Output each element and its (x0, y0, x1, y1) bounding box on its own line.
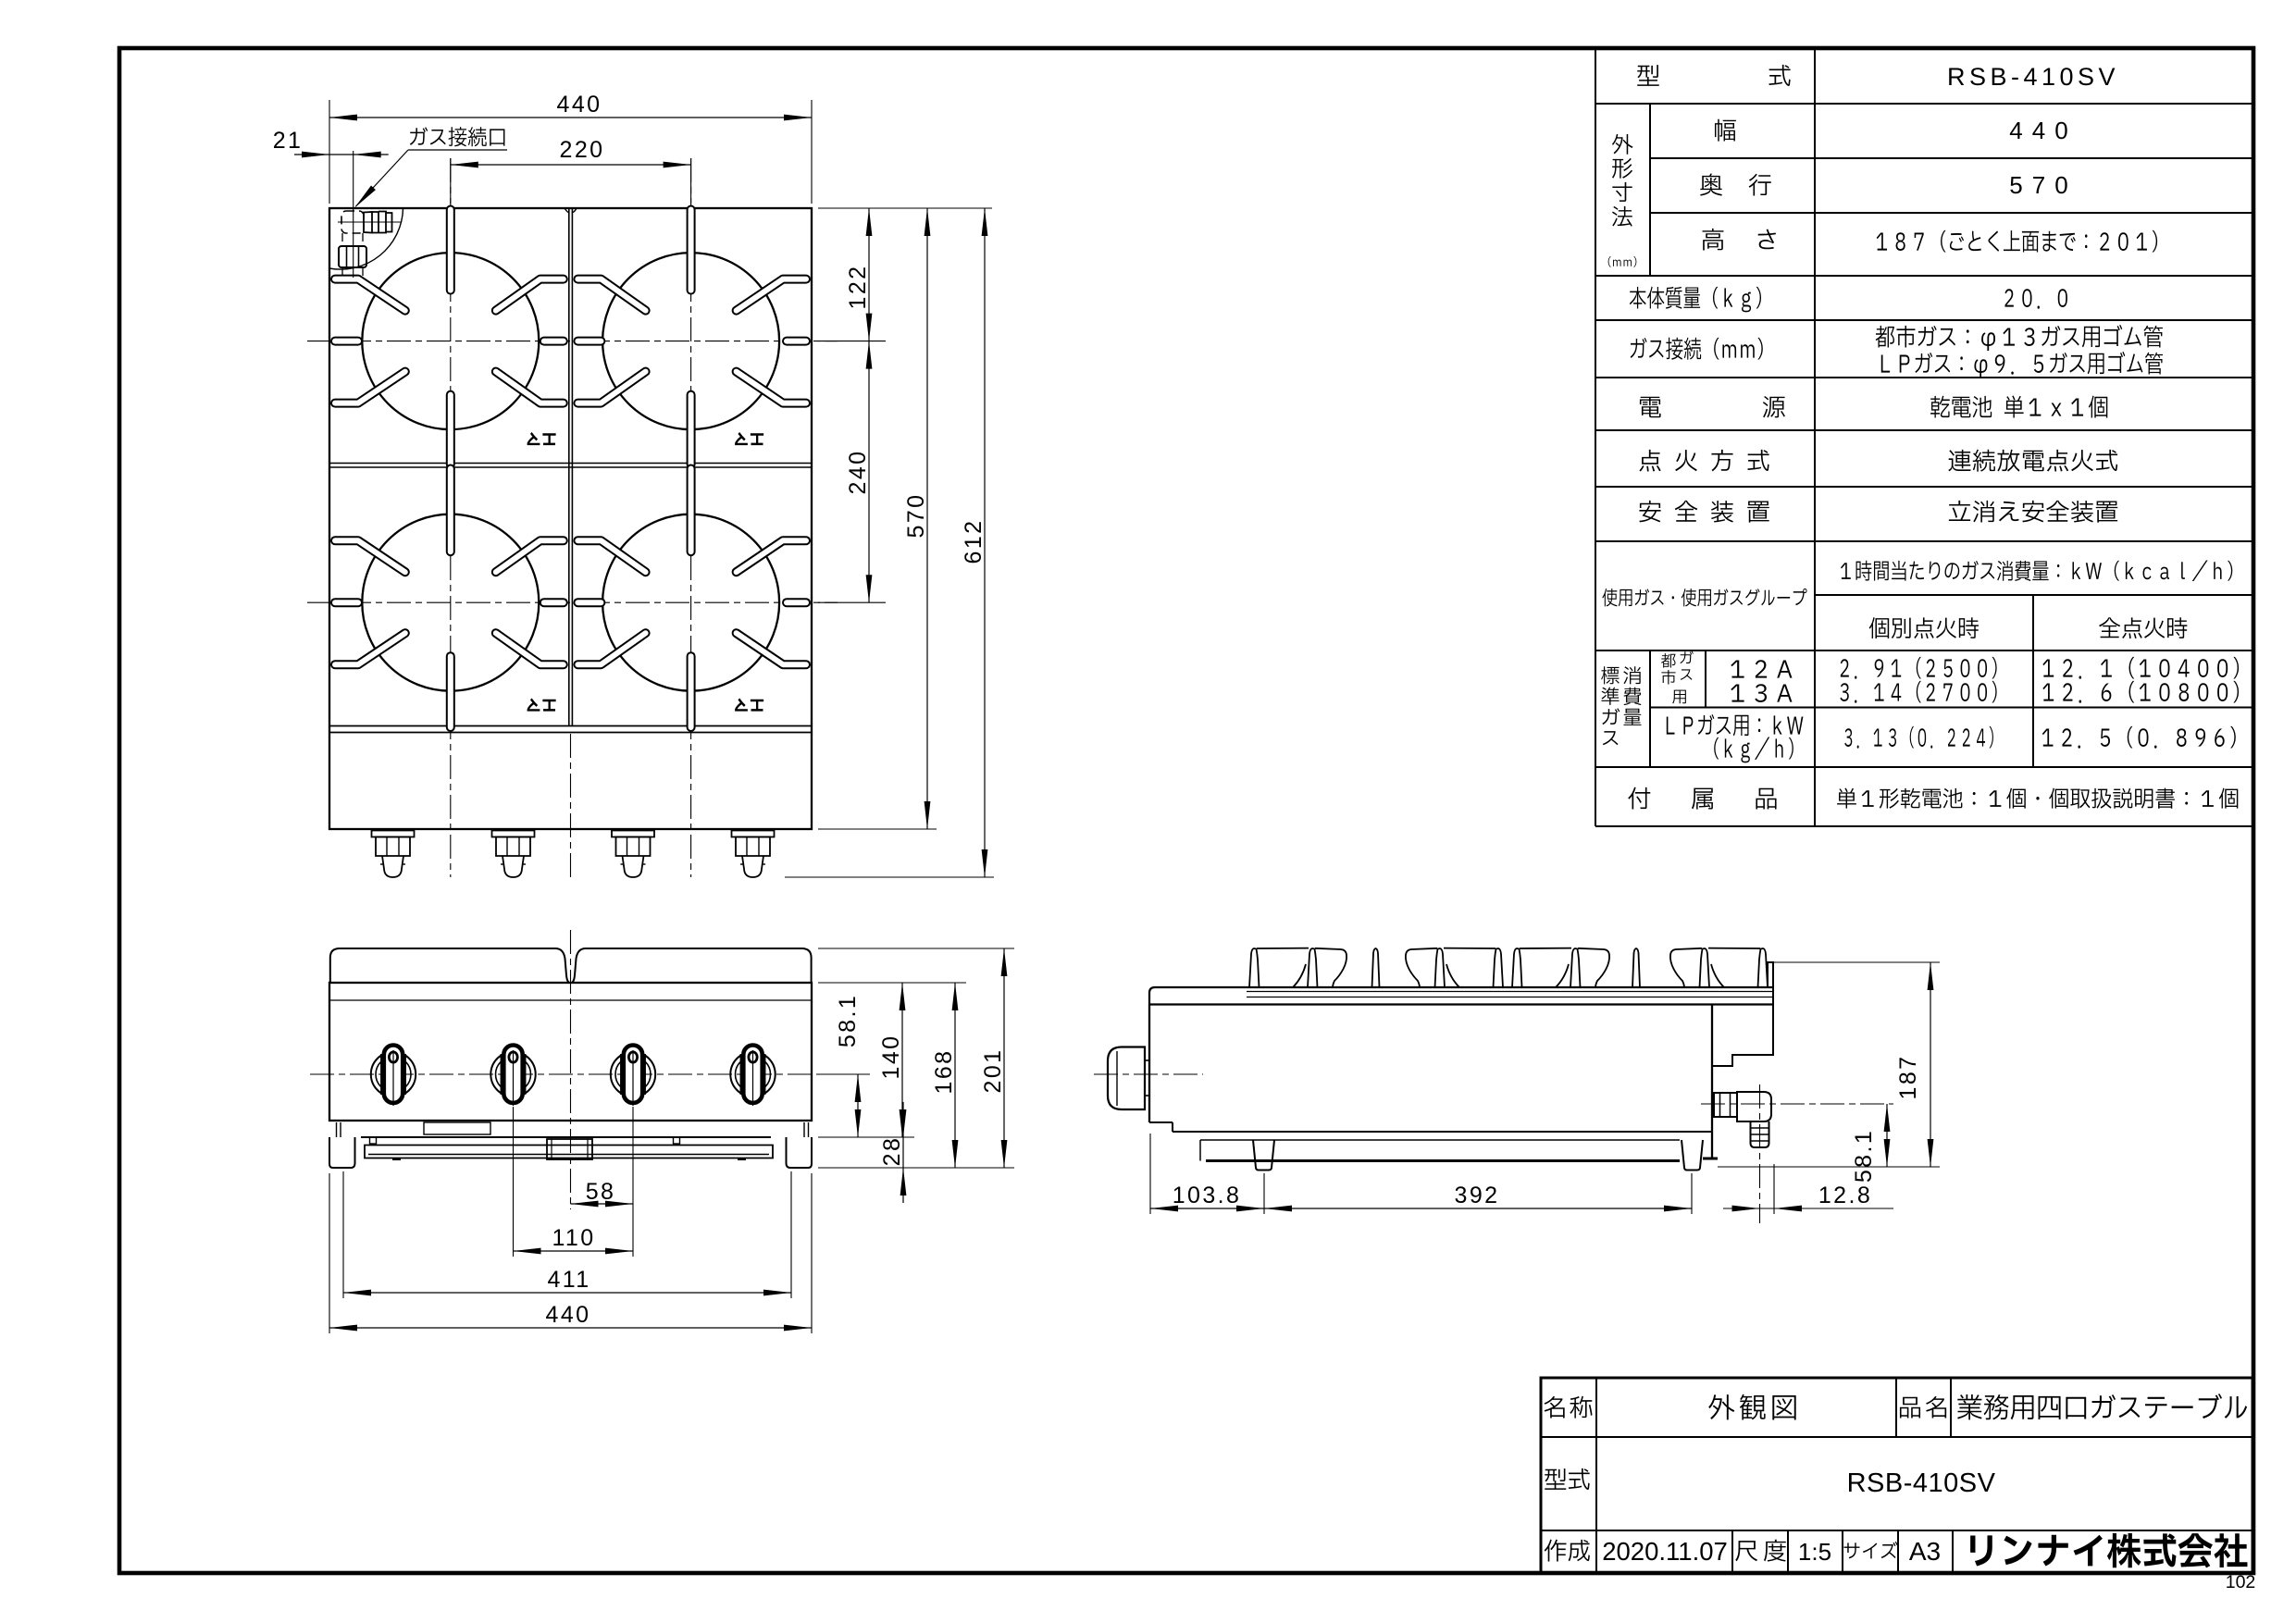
svg-text:58.1: 58.1 (835, 994, 861, 1047)
svg-text:240: 240 (845, 450, 871, 495)
svg-text:570: 570 (903, 493, 929, 539)
svg-text:220: 220 (560, 137, 605, 163)
svg-text:440: 440 (546, 1302, 591, 1328)
svg-text:102: 102 (2226, 1572, 2256, 1592)
svg-text:440: 440 (557, 92, 602, 118)
svg-text:12.8: 12.8 (1818, 1183, 1872, 1208)
svg-text:1:5: 1:5 (1798, 1538, 1831, 1566)
svg-text:411: 411 (547, 1267, 590, 1293)
svg-text:RSB-410SV: RSB-410SV (1947, 63, 2119, 91)
svg-text:187: 187 (1895, 1055, 1921, 1100)
svg-text:201: 201 (980, 1048, 1006, 1094)
svg-text:612: 612 (961, 519, 987, 564)
svg-text:28: 28 (879, 1136, 905, 1167)
svg-text:RSB-410SV: RSB-410SV (1847, 1468, 1996, 1498)
svg-text:392: 392 (1455, 1183, 1500, 1208)
svg-text:122: 122 (845, 265, 871, 310)
svg-text:58.1: 58.1 (1851, 1129, 1877, 1183)
svg-text:140: 140 (878, 1035, 904, 1080)
svg-text:2020.11.07: 2020.11.07 (1602, 1537, 1728, 1566)
svg-text:110: 110 (552, 1225, 595, 1251)
svg-text:440: 440 (2009, 117, 2077, 144)
svg-text:A3: A3 (1909, 1537, 1941, 1566)
svg-text:58: 58 (586, 1179, 616, 1205)
svg-text:21: 21 (273, 128, 304, 154)
svg-text:103.8: 103.8 (1173, 1183, 1242, 1208)
svg-text:570: 570 (2009, 171, 2077, 199)
svg-text:168: 168 (931, 1049, 957, 1095)
